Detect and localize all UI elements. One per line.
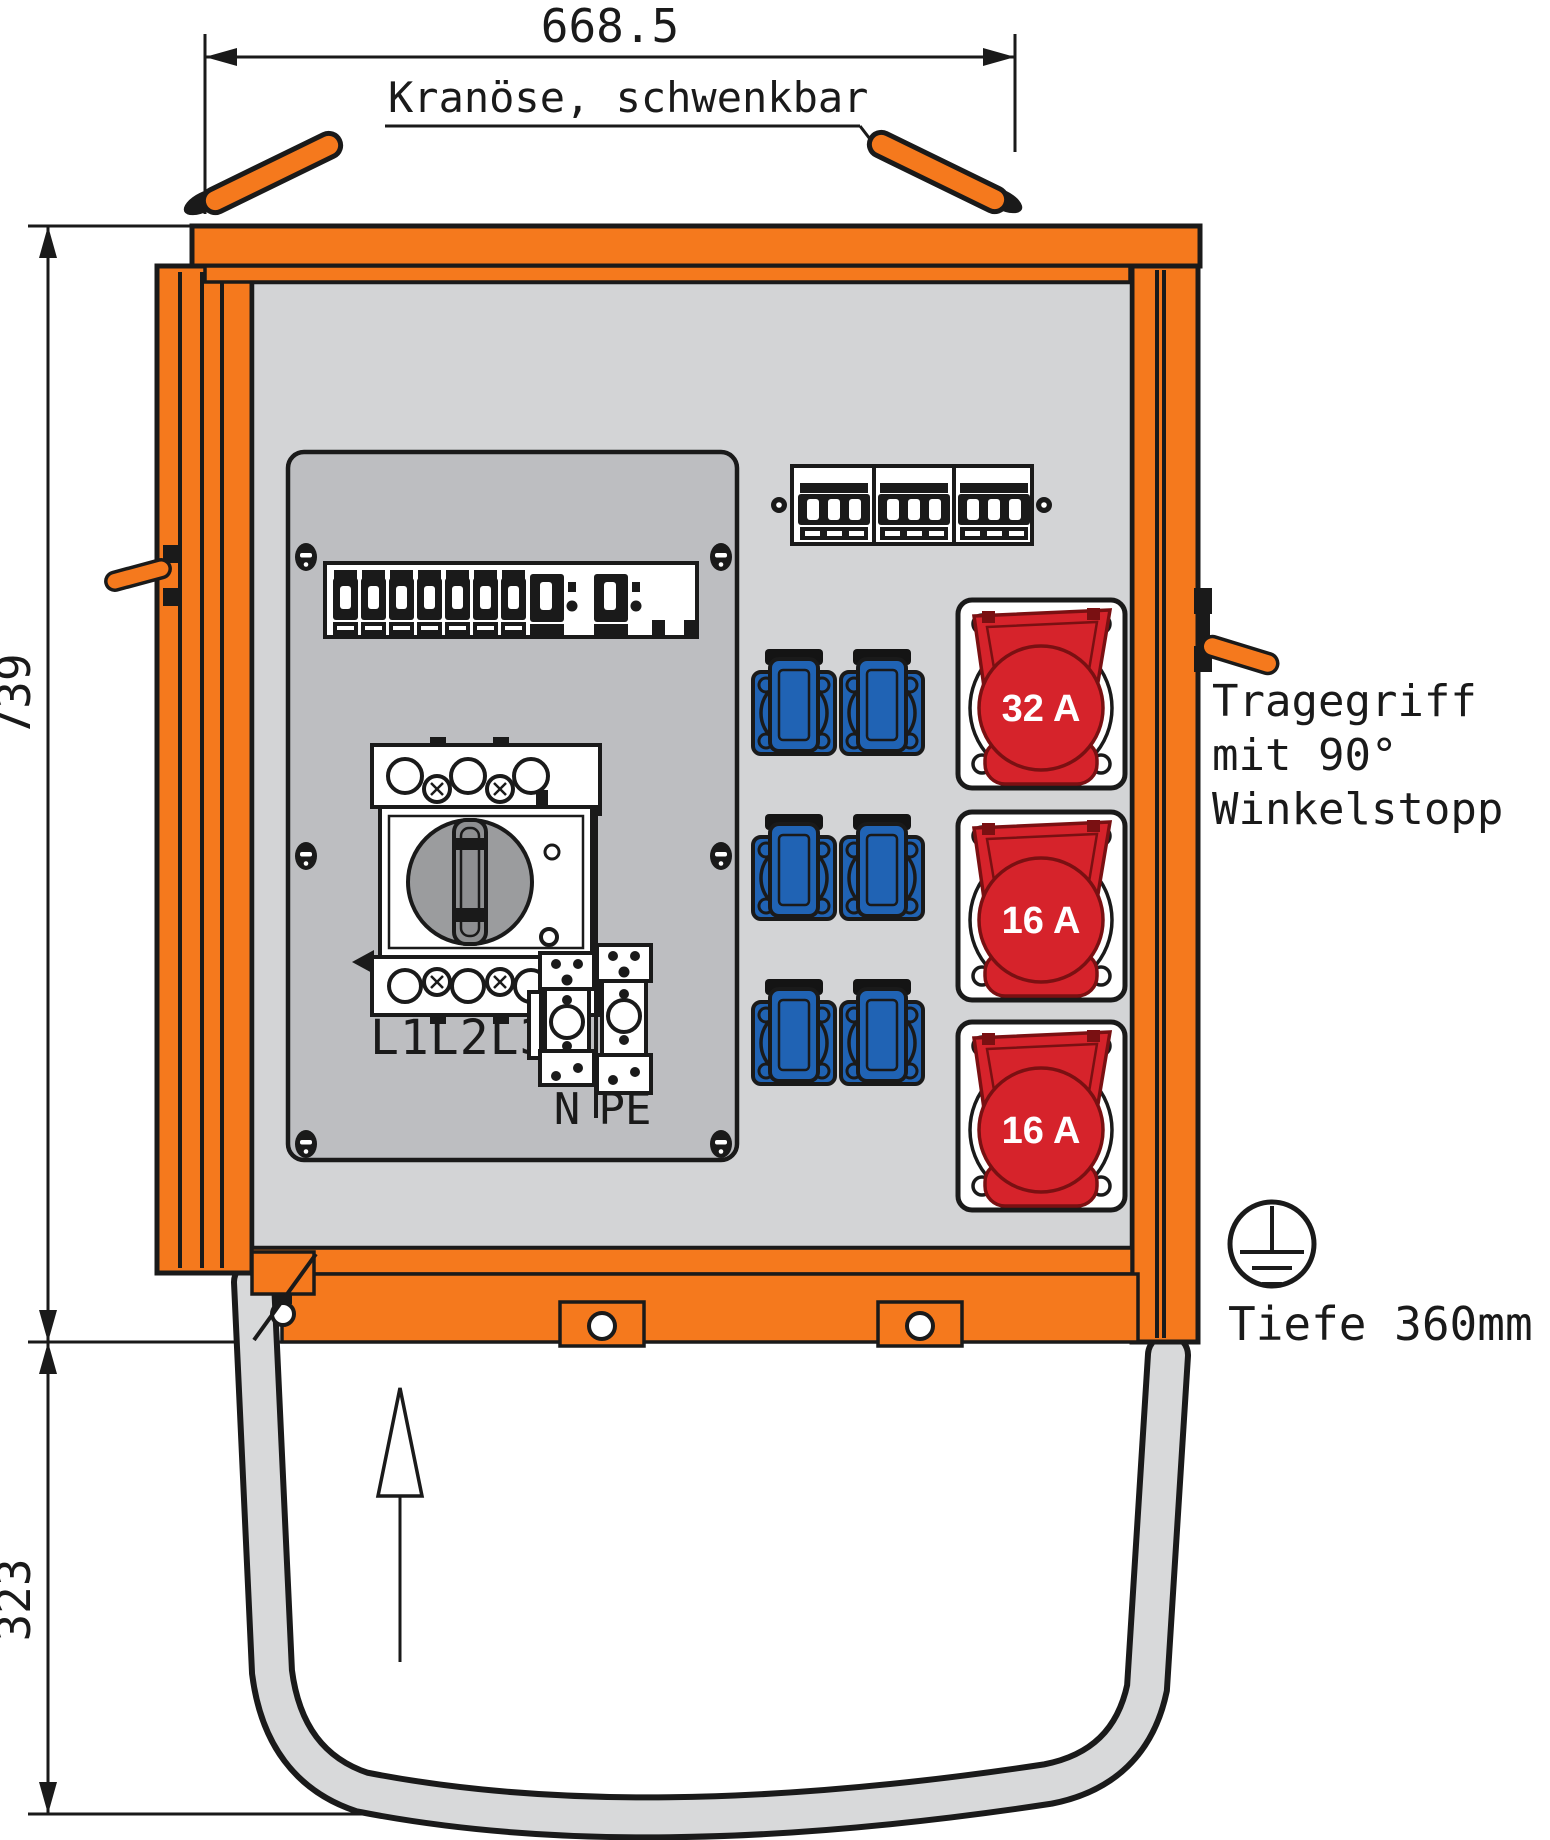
pe-terminal — [597, 945, 651, 1093]
door-hinge-bottom — [163, 588, 179, 606]
direction-up-arrow — [378, 1388, 422, 1662]
three-pole-breaker — [958, 483, 1030, 540]
carry-handle-callout: Tragegriff mit 90° Winkelstopp — [1212, 676, 1503, 835]
crane-eye-callout: Kranöse, schwenkbar — [385, 73, 886, 160]
base-tab-hole-right — [907, 1313, 933, 1339]
three-pole-breaker — [878, 483, 950, 540]
distribution-cabinet-drawing: 668.5 Kranöse, schwenkbar 739 323 — [0, 0, 1550, 1840]
n-terminal — [529, 953, 594, 1085]
hinge-bolt — [272, 1303, 294, 1325]
panel-screw — [295, 1130, 317, 1158]
height-dimension-lower: 323 — [0, 1342, 665, 1814]
din-breaker-strip — [325, 563, 697, 637]
panel-screw — [710, 842, 732, 870]
technical-drawing-page: 668.5 Kranöse, schwenkbar 739 323 — [0, 0, 1550, 1840]
cabinet-roof — [192, 226, 1200, 266]
carry-handle-right — [1194, 588, 1280, 676]
panel-screw — [295, 543, 317, 571]
roof-lip — [205, 266, 1130, 282]
phase-breaker-strip — [771, 466, 1052, 544]
mcb-module — [417, 570, 442, 635]
skid-frame — [254, 1282, 1168, 1817]
cee-16a-rating-2: 16 A — [1002, 1110, 1081, 1152]
handle-label-line2: mit 90° — [1212, 730, 1397, 781]
terminal-pe-label: PE — [599, 1084, 652, 1135]
cee-sockets: 32 A 16 A 16 A — [958, 600, 1125, 1210]
cee-32a-rating: 32 A — [1002, 688, 1081, 730]
cee-16a-rating-1: 16 A — [1002, 900, 1081, 942]
crane-eye-left — [199, 129, 344, 216]
base-bar — [252, 1248, 1132, 1274]
mcb-module — [333, 570, 358, 635]
height-upper-label: 739 — [0, 653, 41, 736]
terminal-n-label: N — [554, 1084, 581, 1135]
depth-label: Tiefe 360mm — [1228, 1297, 1533, 1351]
mcb-module — [361, 570, 386, 635]
base-tab-hole-left — [589, 1313, 615, 1339]
width-dimension-label: 668.5 — [541, 0, 679, 53]
three-pole-breaker — [798, 483, 870, 540]
mcb-module — [473, 570, 498, 635]
ground-symbol — [1230, 1202, 1314, 1286]
mcb-module — [389, 570, 414, 635]
panel-screw — [710, 543, 732, 571]
mounting-panel: L1L2L3 — [288, 452, 737, 1160]
door-left-edge — [157, 266, 252, 1273]
handle-hinge-upper — [1194, 588, 1212, 614]
handle-label-line3: Winkelstopp — [1212, 784, 1503, 835]
cabinet-base — [252, 1248, 1138, 1346]
panel-screw — [710, 1130, 732, 1158]
crane-eye-label: Kranöse, schwenkbar — [388, 73, 868, 122]
handle-label-line1: Tragegriff — [1212, 676, 1477, 727]
main-switch-label: L1L2L3 — [370, 1010, 549, 1066]
mcb-module — [445, 570, 470, 635]
base-plinth — [282, 1274, 1138, 1342]
crane-eye-right — [865, 128, 1010, 215]
mcb-module — [501, 570, 526, 635]
panel-screw — [295, 842, 317, 870]
height-lower-label: 323 — [0, 1558, 41, 1641]
